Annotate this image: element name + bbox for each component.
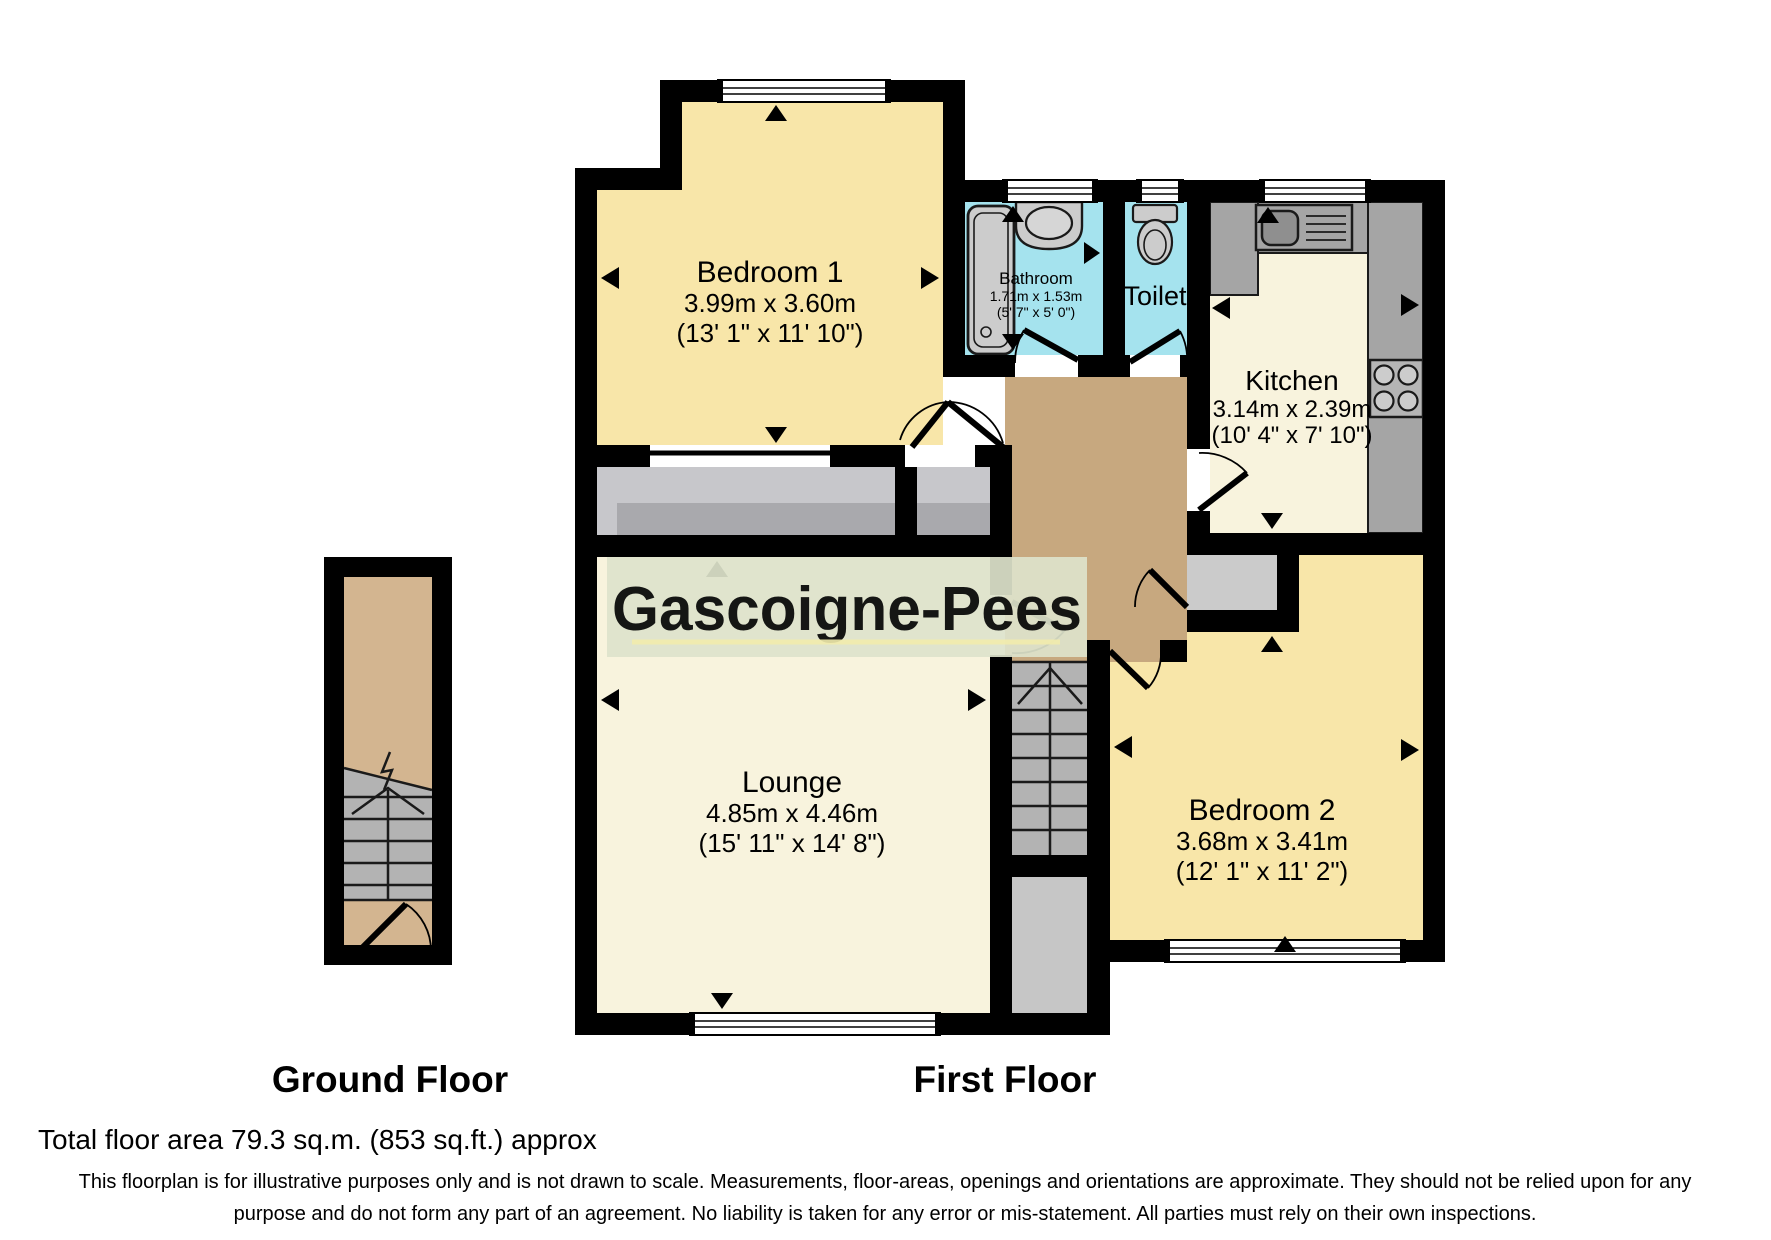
- kitchen-label: Kitchen: [1245, 365, 1338, 396]
- total-area-label: Total floor area 79.3 sq.m. (853 sq.ft.)…: [38, 1124, 597, 1155]
- lounge-imperial: (15' 11" x 14' 8"): [699, 828, 886, 858]
- bathroom-metric: 1.71m x 1.53m: [990, 288, 1083, 304]
- floor-labels: Ground Floor First Floor: [272, 1059, 1097, 1100]
- footer-text: Total floor area 79.3 sq.m. (853 sq.ft.)…: [38, 1124, 1691, 1225]
- bedroom1-metric: 3.99m x 3.60m: [684, 288, 856, 318]
- hob: [1370, 360, 1423, 417]
- lounge-metric: 4.85m x 4.46m: [706, 798, 878, 828]
- bedroom1-imperial: (13' 1" x 11' 10"): [677, 318, 864, 348]
- lounge-label: Lounge: [742, 766, 842, 799]
- disclaimer-line1: This floorplan is for illustrative purpo…: [79, 1171, 1692, 1193]
- counter-left: [1210, 202, 1258, 295]
- ground-floor-label: Ground Floor: [272, 1059, 508, 1100]
- bedroom2-label: Bedroom 2: [1189, 794, 1336, 827]
- kitchen-window: [1260, 180, 1370, 202]
- bathroom-window: [1003, 180, 1097, 202]
- floorplan-page: Gascoigne-Pees Bedroom 1 3.99m x 3.60m (…: [0, 0, 1771, 1240]
- bedroom1-window: [718, 80, 890, 102]
- toilet-window: [1137, 180, 1183, 202]
- bedroom2-metric: 3.68m x 3.41m: [1176, 826, 1348, 856]
- bedroom2-imperial: (12' 1" x 11' 2"): [1176, 856, 1348, 886]
- kitchen-metric: 3.14m x 2.39m: [1213, 396, 1372, 423]
- bathroom-sink: [1016, 202, 1082, 249]
- bathroom-imperial: (5' 7" x 5' 0"): [997, 304, 1075, 320]
- cupboard-interior: [1187, 555, 1277, 610]
- kitchen-imperial: (10' 4" x 7' 10"): [1212, 422, 1373, 449]
- first-floor-label: First Floor: [914, 1059, 1097, 1100]
- stairs-first-floor: [1012, 662, 1087, 855]
- toilet-label: Toilet: [1123, 281, 1187, 311]
- floorplan-drawing: Gascoigne-Pees Bedroom 1 3.99m x 3.60m (…: [0, 0, 1771, 1240]
- stairwell-entry: [1012, 877, 1087, 1013]
- watermark: Gascoigne-Pees: [607, 557, 1087, 657]
- balcony-inner: [617, 503, 1012, 535]
- bedroom1-label: Bedroom 1: [697, 256, 844, 289]
- bathroom-label: Bathroom: [999, 269, 1073, 288]
- disclaimer-line2: purpose and do not form any part of an a…: [234, 1203, 1537, 1225]
- watermark-text: Gascoigne-Pees: [612, 575, 1082, 644]
- lounge-window: [690, 1013, 940, 1035]
